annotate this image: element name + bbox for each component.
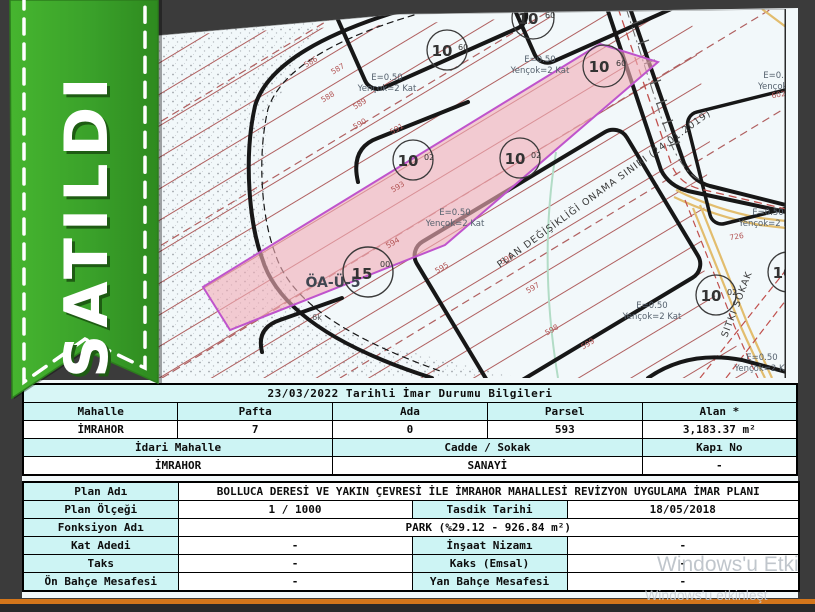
road-marker-main: 10 bbox=[505, 150, 526, 168]
zoning-label: E=0.50 bbox=[439, 208, 470, 218]
road-marker-main: 10 bbox=[398, 152, 419, 170]
zoning-label: E=0.50 bbox=[746, 353, 777, 363]
zoning-label: E=0.50 bbox=[524, 55, 555, 65]
cell-alan-value: 3,183.37 m² bbox=[642, 421, 797, 439]
cell-pafta-value: 7 bbox=[178, 421, 333, 439]
cell-insaat-nizami-label: İnşaat Nizamı bbox=[412, 537, 567, 555]
cell-fonksiyon-label: Fonksiyon Adı bbox=[23, 519, 178, 537]
zoning-label: E=0.50 bbox=[752, 208, 783, 218]
zoning-label: Yençok=2 Kat bbox=[622, 312, 682, 322]
zoning-label: E=0.50 bbox=[636, 301, 667, 311]
cell-cadde-sokak-value: SANAYİ bbox=[333, 457, 643, 476]
road-marker-sub: 02 bbox=[531, 151, 541, 160]
cell-pafta-header: Pafta bbox=[178, 403, 333, 421]
cell-on-bahce-value: - bbox=[178, 573, 412, 592]
cell-plan-adi-label: Plan Adı bbox=[23, 482, 178, 501]
cell-taks-value: - bbox=[178, 555, 412, 573]
road-marker-main: 10 bbox=[589, 58, 610, 76]
road-marker-sub: 60 bbox=[616, 59, 626, 68]
road-marker-main: 10 bbox=[432, 42, 453, 60]
cell-kat-adedi-label: Kat Adedi bbox=[23, 537, 178, 555]
cell-cadde-sokak-header: Cadde / Sokak bbox=[333, 439, 643, 457]
kat-adedi-row: Kat Adedi - İnşaat Nizamı - bbox=[23, 537, 799, 555]
plan-olcegi-row: Plan Ölçeği 1 / 1000 Tasdik Tarihi 18/05… bbox=[23, 501, 799, 519]
road-marker-main: 10 bbox=[701, 287, 722, 305]
cell-kapi-no-value: - bbox=[642, 457, 797, 476]
road-marker-sub: 00 bbox=[380, 260, 390, 269]
fonksiyon-row: Fonksiyon Adı PARK (%29.12 - 926.84 m²) bbox=[23, 519, 799, 537]
cell-kaks-label: Kaks (Emsal) bbox=[412, 555, 567, 573]
road-marker-sub: 02 bbox=[727, 288, 737, 297]
cell-ada-value: 0 bbox=[333, 421, 488, 439]
cell-tasdik-tarihi-value: 18/05/2018 bbox=[567, 501, 799, 519]
zoning-label: Yençok=2 Kat bbox=[425, 219, 485, 229]
parcel-value-row: İMRAHOR 7 0 593 3,183.37 m² bbox=[23, 421, 797, 439]
zoning-label: Yençok=2 Kat bbox=[357, 84, 417, 94]
zoning-label: E=0.50 bbox=[371, 73, 402, 83]
cell-taks-label: Taks bbox=[23, 555, 178, 573]
cell-ada-header: Ada bbox=[333, 403, 488, 421]
cell-insaat-nizami-value: - bbox=[567, 537, 799, 555]
cell-plan-olcegi-label: Plan Ölçeği bbox=[23, 501, 178, 519]
road-marker-sub: 60 bbox=[458, 43, 468, 52]
cell-fonksiyon-value: PARK (%29.12 - 926.84 m²) bbox=[178, 519, 799, 537]
cell-on-bahce-label: Ön Bahçe Mesafesi bbox=[23, 573, 178, 592]
screenshot-stage: E=0.50 Yençok=2 Kat E=0.50 Yençok=2 Kat … bbox=[0, 0, 815, 612]
address-header-row: İdari Mahalle Cadde / Sokak Kapı No bbox=[23, 439, 797, 457]
cell-parsel-value: 593 bbox=[487, 421, 642, 439]
cell-idari-mahalle-header: İdari Mahalle bbox=[23, 439, 333, 457]
sold-ribbon: SATILDI SATILDI bbox=[0, 0, 175, 415]
cell-plan-olcegi-value: 1 / 1000 bbox=[178, 501, 412, 519]
address-value-row: İMRAHOR SANAYİ - bbox=[23, 457, 797, 476]
cell-idari-mahalle-value: İMRAHOR bbox=[23, 457, 333, 476]
windows-activation-watermark-line2: Windows'u etkinleşt bbox=[645, 587, 768, 603]
bottom-dark-strip bbox=[0, 604, 815, 612]
cell-kat-adedi-value: - bbox=[178, 537, 412, 555]
road-marker-sub: 02 bbox=[424, 153, 434, 162]
cell-mahalle-value: İMRAHOR bbox=[23, 421, 178, 439]
small-map-label: 6k bbox=[312, 313, 322, 322]
plan-adi-row: Plan Adı BOLLUCA DERESİ VE YAKIN ÇEVRESİ… bbox=[23, 482, 799, 501]
road-marker-main: 15 bbox=[352, 265, 373, 283]
ribbon-label: SATILDI bbox=[52, 70, 122, 378]
windows-activation-watermark-line1: Windows'u Etki bbox=[657, 553, 799, 577]
cell-kapi-no-header: Kapı No bbox=[642, 439, 797, 457]
cell-tasdik-tarihi-label: Tasdik Tarihi bbox=[412, 501, 567, 519]
cell-yan-bahce-label: Yan Bahçe Mesafesi bbox=[412, 573, 567, 592]
cell-parsel-header: Parsel bbox=[487, 403, 642, 421]
cell-alan-header: Alan * bbox=[642, 403, 797, 421]
cell-plan-adi-value: BOLLUCA DERESİ VE YAKIN ÇEVRESİ İLE İMRA… bbox=[178, 482, 799, 501]
zoning-label: Yençok=2 Kat bbox=[510, 66, 570, 76]
zoning-label: Yençok=2 Ka bbox=[733, 364, 789, 374]
